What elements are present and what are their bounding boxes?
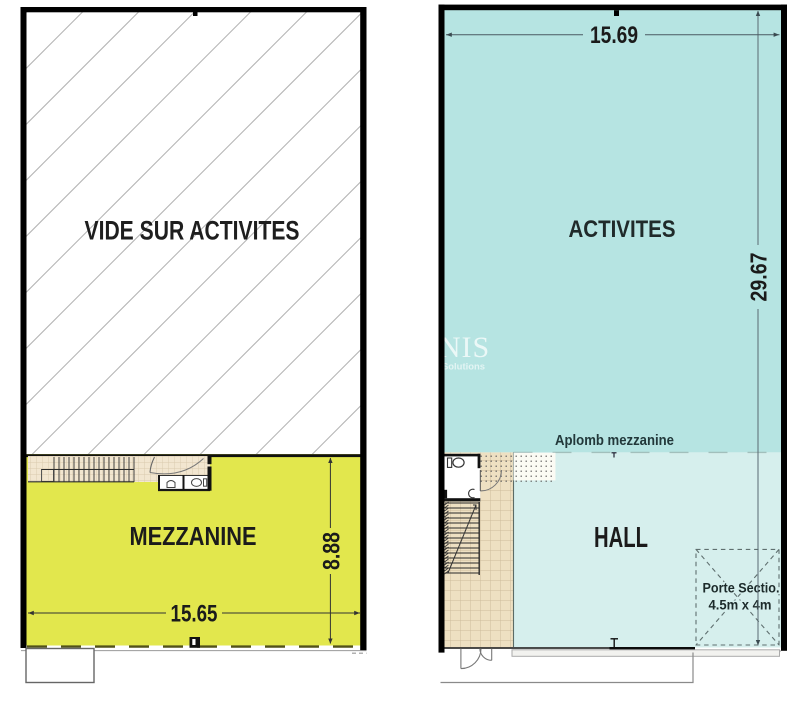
svg-text:MEZZANINE: MEZZANINE (130, 521, 257, 551)
svg-text:4.5m x 4m: 4.5m x 4m (709, 598, 772, 613)
svg-text:15.65: 15.65 (171, 601, 218, 628)
svg-text:NIS: NIS (439, 331, 490, 364)
svg-text:Aplomb mezzanine: Aplomb mezzanine (555, 432, 674, 449)
svg-text:Solutions: Solutions (442, 362, 485, 373)
svg-text:HALL: HALL (594, 522, 648, 554)
svg-text:Porte Sectio.: Porte Sectio. (703, 581, 780, 596)
svg-text:29.67: 29.67 (746, 253, 772, 302)
svg-text:VIDE SUR ACTIVITES: VIDE SUR ACTIVITES (85, 216, 300, 246)
svg-text:15.69: 15.69 (590, 22, 638, 49)
svg-text:ACTIVITES: ACTIVITES (569, 216, 676, 243)
svg-text:8.88: 8.88 (319, 532, 346, 570)
